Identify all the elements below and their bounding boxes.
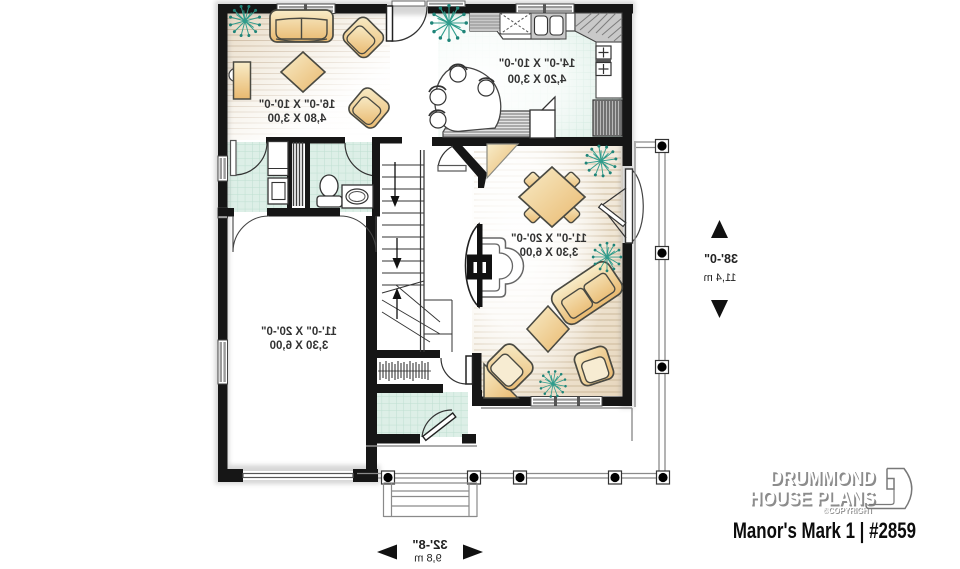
svg-text:14'-0" X 10'-0": 14'-0" X 10'-0" bbox=[499, 58, 575, 70]
svg-text:3,30 X 6,00: 3,30 X 6,00 bbox=[520, 247, 579, 259]
svg-text:©COPYRIGHT: ©COPYRIGHT bbox=[823, 505, 873, 515]
svg-text:38'-0": 38'-0" bbox=[704, 252, 738, 266]
svg-text:11'-0" X 20'-0": 11'-0" X 20'-0" bbox=[261, 326, 337, 338]
svg-text:Manor's Mark 1 | #2859: Manor's Mark 1 | #2859 bbox=[733, 519, 916, 544]
svg-text:16'-0" X 10'-0": 16'-0" X 10'-0" bbox=[259, 99, 335, 111]
svg-text:11,4 m: 11,4 m bbox=[704, 272, 737, 284]
svg-text:32'-8": 32'-8" bbox=[412, 537, 447, 552]
svg-text:4,20 X 3,00: 4,20 X 3,00 bbox=[508, 74, 567, 86]
svg-text:3,30 X 6,00: 3,30 X 6,00 bbox=[270, 340, 329, 352]
svg-text:11'-0" X 20'-0": 11'-0" X 20'-0" bbox=[511, 233, 587, 245]
svg-text:9,8 m: 9,8 m bbox=[414, 553, 442, 565]
svg-text:4,80 X 3,00: 4,80 X 3,00 bbox=[268, 113, 327, 125]
